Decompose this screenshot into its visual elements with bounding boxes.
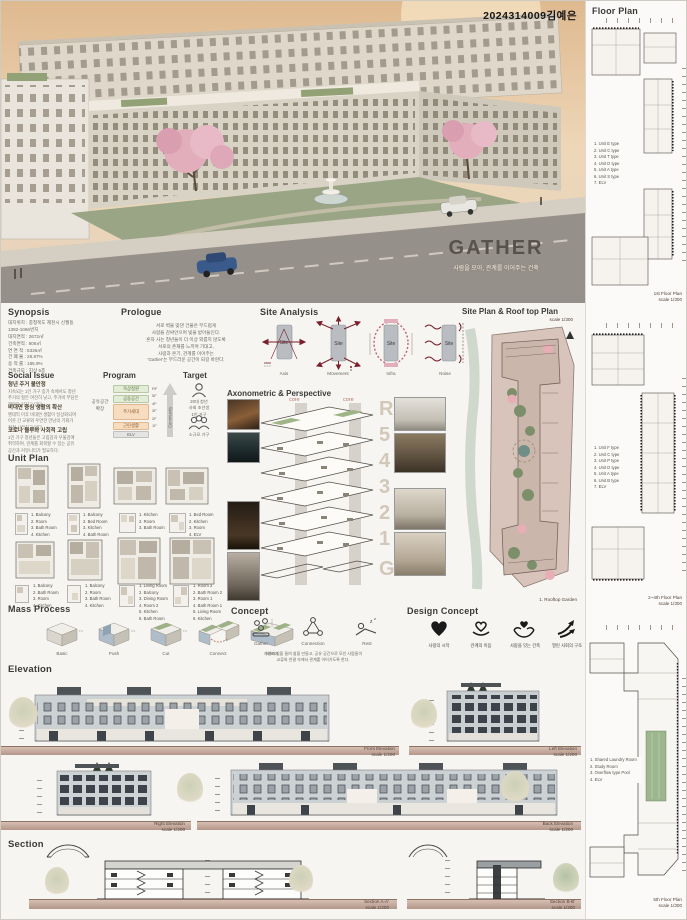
axon-floor-g: G: [379, 559, 395, 579]
concept-label-connection: Connection: [291, 641, 335, 648]
concept-label-gather: Gather: [239, 641, 283, 648]
front-elevation-scale: scale 1/200: [372, 752, 396, 757]
fifth-floor-plan-caption: 5th Floor Plan scale 1/300: [620, 897, 682, 908]
axon-floor-3: 3: [379, 477, 390, 497]
first-floor-plan-legend: 1. Unit E type 2. Unit C type 3. Unit T …: [594, 141, 640, 187]
axon-heading: Axonometric & Perspective: [227, 389, 331, 398]
tree-5: [45, 867, 69, 897]
axon-floor-r: R: [379, 399, 393, 419]
left-elevation-caption: Left Elevation scale 1/200: [499, 746, 577, 757]
perspective-photo-rooftop-night: [227, 399, 260, 430]
section-a-name: Section A-A': [364, 899, 389, 904]
mass-step-label-cut: Cut: [143, 651, 189, 658]
person-icon: [190, 383, 208, 398]
social-topic-3-title: 코로나 블루와 사회적 고립: [8, 428, 88, 435]
student-id: 2024314009김예은: [361, 8, 577, 23]
section-b-name: Section B-B': [550, 899, 575, 904]
program-row-roofgarden: 옥상정원: [113, 385, 149, 393]
tree-3: [177, 773, 203, 805]
program-row-housing: 주거세대: [113, 404, 149, 420]
site-analysis-heading: Site Analysis: [260, 307, 318, 317]
axon-floor-2: 2: [379, 503, 390, 523]
section-b-ticks: [445, 853, 450, 897]
program-side-label: 공유공간 확장: [89, 399, 111, 413]
program-row-elv: ELV: [113, 431, 149, 438]
unit-plan-key-3: [119, 513, 136, 533]
program-row-common: 공용공간: [113, 395, 149, 403]
heart-hands-icon: [469, 617, 493, 639]
tree-2: [411, 699, 437, 731]
mid-floor-plan-caption: 2~4th Floor Plan scale 1/300: [618, 595, 682, 606]
right-elevation-name: Right Elevation: [154, 821, 185, 826]
svg-text:Site: Site: [445, 341, 454, 347]
section-heading: Section: [8, 839, 44, 850]
elevation-back-ticks: [215, 771, 220, 817]
unit-plan-heading: Unit Plan: [8, 453, 49, 463]
arrows-icon: [555, 617, 579, 639]
prologue-text: 서로 벽을 맞댄 건물은 부드럽게 사람을 감싸안으며 빛을 받아들인다. 혼자…: [119, 323, 253, 364]
north-arrow: [566, 331, 574, 339]
target-heading: Target: [183, 371, 207, 380]
target-item-2: 소규모 가구: [177, 432, 221, 438]
social-topic-2-title: 비대면 중심 생활의 확산: [8, 405, 88, 412]
floor-plan-column: Floor Plan 1. Unit E type 2. Unit C type…: [585, 1, 687, 920]
back-elevation-name: Back Elevation: [543, 821, 573, 826]
axon-floor-1: 1: [379, 529, 390, 549]
design-concept-label-4: 열린 사회의 구조: [545, 643, 589, 649]
front-elevation-caption: Front Elevation scale 1/200: [319, 746, 395, 757]
fifth-floor-plan-legend: 1. Shared Laundry Room 2. Study Room 3. …: [590, 757, 642, 783]
unit-plan-key-2: [67, 513, 80, 535]
mid-floor-plan-scale: scale 1/300: [659, 601, 683, 606]
svg-text:Community: Community: [168, 406, 173, 428]
connection-icon: [301, 615, 325, 639]
axon-floor-5: 5: [379, 425, 390, 445]
synopsis-lines: 대지위치 : 충청북도 제천시 신월동 1382-1066번지 대지면적 : 2…: [8, 320, 114, 375]
first-floor-plan-name: 1st Floor Plan: [654, 291, 682, 296]
social-topic-3-body: 1인 가구 청년들은 고립감과 우울감에 취약하며, 관계를 회복할 수 있는 …: [8, 435, 90, 454]
synopsis-heading: Synopsis: [8, 307, 50, 317]
unit-plan-legend-3: 1. Kitchen 2. Room 3. Bath Room: [139, 512, 173, 532]
heart-icon: [427, 617, 451, 639]
front-elevation-drawing: [27, 675, 339, 747]
site-plan-caption: 1. Rooftop Garden: [501, 597, 577, 603]
tree-1: [9, 697, 37, 731]
back-elevation-caption: Back Elevation scale 1/200: [495, 821, 573, 832]
unit-plan-thumb-2: [67, 463, 101, 509]
right-elevation-scale: scale 1/200: [162, 827, 186, 832]
section-a-caption: Section A-A' scale 1/200: [289, 899, 389, 910]
unit-plan-thumb-6: [67, 539, 103, 581]
section-a-drawing: [87, 849, 319, 903]
mass-step-connect-drawing: [195, 615, 241, 649]
social-issue-heading: Social Issue: [8, 371, 54, 380]
section-a-scale: scale 1/200: [366, 905, 390, 910]
perspective-photo-pool: [227, 432, 260, 463]
perspective-photo-lounge-night: [227, 501, 260, 550]
project-title: GATHER: [431, 237, 561, 260]
site-analysis-label-infra: Infra: [367, 371, 415, 378]
site-analysis-axis-diagram: Site: [261, 319, 307, 369]
site-analysis-label-movement: Movement: [313, 371, 363, 378]
mid-floor-plan-legend: 1. Unit F type 2. Unit C type 3. Unit P …: [594, 445, 640, 491]
left-elevation-scale: scale 1/200: [554, 752, 578, 757]
column-edge-ticks-2: [682, 371, 687, 571]
column-edge-ticks-3: [682, 671, 687, 871]
tree-6: [289, 865, 313, 895]
hero-render: 2024314009김예은 GATHER 사람을 모아, 관계를 이어주는 건축: [1, 1, 585, 303]
column-edge-ticks-1: [682, 61, 687, 261]
unit-plan-key-1: [15, 513, 28, 535]
design-concept-label-3: 사람을 잇는 건축: [502, 643, 548, 649]
gather-icon: [249, 615, 273, 639]
perspective-photo-kitchen: [394, 488, 446, 530]
mass-process-heading: Mass Process: [8, 604, 70, 614]
mid-floor-plan-name: 2~4th Floor Plan: [648, 595, 682, 600]
unit-plan-key-8: [173, 585, 189, 607]
mass-step-label-push: Push: [91, 651, 137, 658]
social-topic-1-title: 청년 주거 불안정: [8, 382, 88, 389]
right-elevation-caption: Right Elevation scale 1/200: [107, 821, 185, 832]
design-concept-label-1: 사랑의 시작: [417, 643, 461, 649]
svg-text:Site: Site: [334, 341, 343, 347]
perspective-photo-cafe: [394, 433, 446, 473]
project-subtitle: 사람을 모아, 관계를 이어주는 건축: [416, 263, 576, 272]
tree-7: [553, 863, 579, 895]
elevation-heading: Elevation: [8, 664, 52, 675]
unit-plan-thumb-8: [169, 537, 215, 585]
plan3-ticks: [596, 625, 678, 630]
right-elevation-drawing: [45, 759, 167, 821]
fifth-floor-plan-name: 5th Floor Plan: [653, 897, 682, 902]
elevation-right-ticks: [37, 773, 42, 817]
section-b-drawing: [453, 849, 553, 903]
front-elevation-name: Front Elevation: [364, 746, 395, 751]
site-plan-drawing: [462, 323, 580, 595]
first-floor-plan-caption: 1st Floor Plan scale 1/300: [622, 291, 682, 302]
axon-exploded-drawing: [257, 403, 377, 593]
site-analysis-movement-diagram: Site: [313, 315, 363, 371]
concept-label-rest: Rest: [345, 641, 389, 648]
unit-plan-key-7: [119, 585, 135, 607]
section-b-scale: scale 1/200: [552, 905, 576, 910]
rest-icon: zz: [353, 615, 379, 639]
first-floor-plan-scale: scale 1/300: [659, 297, 683, 302]
section-b-caption: Section B-B' scale 1/200: [493, 899, 575, 910]
unit-plan-legend-6: 1. Balcony 2. Room 3. Bath Room 4. Kitch…: [85, 583, 119, 609]
perspective-photo-bedroom: [394, 532, 446, 576]
perspective-photo-facade: [394, 397, 446, 431]
site-analysis-label-axis: Axis: [259, 371, 309, 378]
axon-floor-4: 4: [379, 451, 390, 471]
unit-plan-thumb-1: [15, 465, 49, 509]
unit-plan-legend-4: 1. Bed Room 2. Kitchen 3. Room 4. ELV: [189, 512, 223, 538]
plan1-ticks: [596, 18, 678, 23]
floor-plan-heading: Floor Plan: [592, 6, 638, 16]
unit-plan-key-5: [15, 585, 29, 603]
unit-plan-thumb-5: [15, 541, 55, 579]
svg-text:z: z: [374, 616, 376, 621]
program-stack: 옥상정원 공용공간 주거세대 근린생활 ELV: [113, 385, 149, 438]
fifth-floor-plan-scale: scale 1/300: [659, 903, 683, 908]
hands-holding-heart-icon: [511, 617, 537, 639]
svg-text:Site: Site: [387, 341, 396, 347]
unit-plan-key-4: [169, 513, 186, 533]
group-icon: [187, 415, 211, 430]
site-analysis-infra-diagram: Site: [367, 315, 415, 371]
unit-plan-key-6: [67, 585, 81, 603]
presentation-board: 2024314009김예은 GATHER 사람을 모아, 관계를 이어주는 건축…: [0, 0, 687, 920]
svg-text:z: z: [370, 619, 373, 625]
unit-plan-thumb-7: [117, 537, 161, 585]
site-plan-heading: Site Plan & Roof top Plan: [462, 307, 558, 316]
mass-step-basic-drawing: [39, 615, 85, 649]
mass-step-push-drawing: [91, 615, 137, 649]
program-row-retail: 근린생활: [113, 422, 149, 430]
svg-text:Site: Site: [280, 340, 289, 346]
unit-plan-thumb-3: [113, 467, 157, 505]
unit-plan-legend-1: 1. Balcony 2. Room 3. Bath Room 4. Kitch…: [31, 512, 65, 538]
prologue-heading: Prologue: [121, 307, 162, 317]
mass-step-label-basic: Basic: [39, 651, 85, 658]
back-elevation-scale: scale 1/200: [550, 827, 574, 832]
tree-4: [501, 771, 529, 805]
perspective-photo-corridor: [227, 552, 260, 601]
concept-caption: 자연과 빛을 들여 쉼을 만들고, 공유 공간으로 모인 사람들이 교류와 연결…: [235, 651, 391, 663]
left-elevation-drawing: [437, 677, 549, 747]
design-concept-heading: Design Concept: [407, 606, 478, 616]
plan2-ticks: [596, 323, 678, 328]
unit-plan-thumb-4: [165, 467, 209, 505]
program-heading: Program: [103, 371, 136, 380]
site-plan-scale: scale 1/300: [501, 317, 573, 323]
design-concept-label-2: 관계의 이음: [459, 643, 503, 649]
left-elevation-name: Left Elevation: [549, 746, 577, 751]
unit-plan-legend-2: 1. Balcony 2. Bed Room 3. Kitchen 4. Bat…: [83, 512, 117, 538]
mass-step-cut-drawing: [143, 615, 189, 649]
section-a-key-icon: [43, 841, 93, 861]
